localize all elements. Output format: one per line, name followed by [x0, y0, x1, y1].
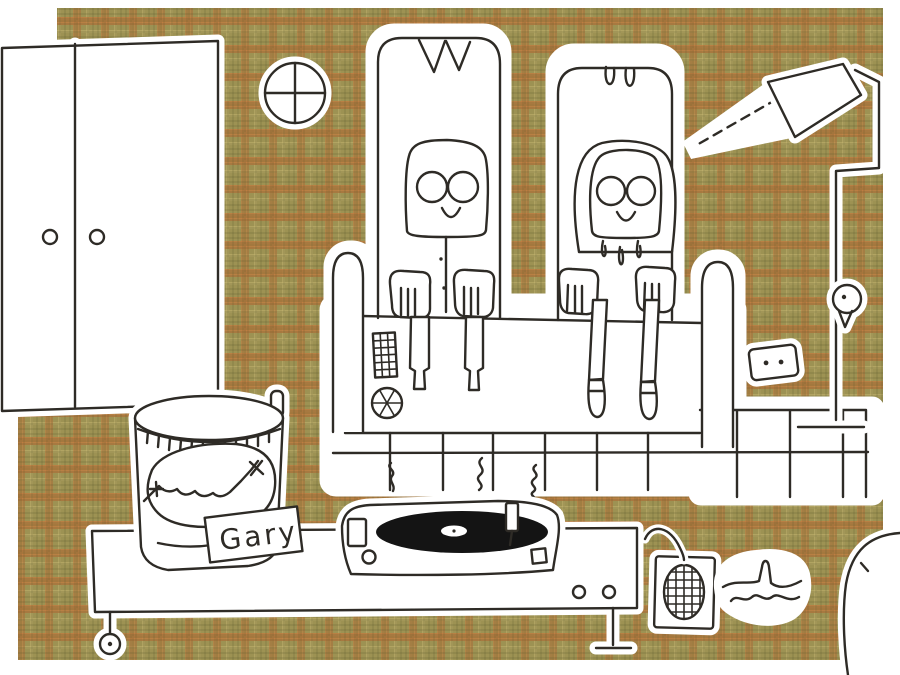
couch-armrest-right — [702, 262, 733, 447]
woman-glasses-right — [627, 177, 655, 205]
storage-jar: Gary — [135, 391, 302, 570]
player-knob — [363, 551, 376, 564]
illustration-canvas: Gary — [0, 0, 900, 675]
man-glasses-right — [448, 172, 478, 202]
cartoon-living-room-scene: Gary — [0, 0, 900, 675]
couch-wheel-ornament — [372, 388, 402, 418]
armchair-corner — [844, 533, 900, 675]
record-player — [342, 501, 559, 575]
woman-glasses-left — [597, 177, 625, 205]
sound-waves — [718, 553, 807, 622]
tonearm — [506, 503, 518, 531]
woman-foot-right — [640, 382, 656, 419]
porthole-window — [265, 63, 325, 123]
man-glasses-left — [417, 172, 447, 202]
woman-leg-right — [641, 300, 659, 382]
player-button — [531, 548, 546, 563]
wall-outlet — [748, 344, 798, 380]
couch-armrest-left — [333, 253, 363, 432]
wardrobe — [2, 41, 218, 411]
man-hand-right — [454, 270, 494, 317]
jar-label: Gary — [205, 506, 303, 562]
player-switch — [348, 519, 366, 546]
man-hand-left — [390, 271, 430, 318]
woman-foot-left — [588, 380, 604, 417]
woman-leg-left — [589, 300, 607, 380]
